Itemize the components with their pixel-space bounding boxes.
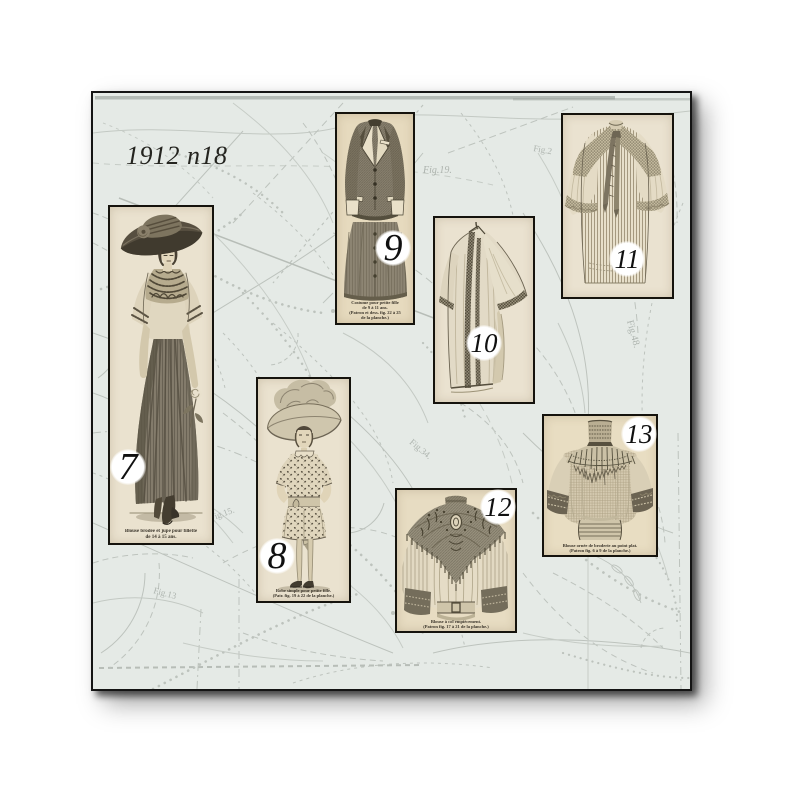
- svg-text:Fig.19.: Fig.19.: [422, 165, 452, 176]
- svg-text:11: 11: [615, 244, 640, 274]
- svg-text:8: 8: [268, 538, 287, 574]
- svg-text:7: 7: [119, 449, 140, 485]
- svg-text:13: 13: [626, 419, 653, 449]
- svg-text:9: 9: [384, 230, 403, 266]
- svg-text:10: 10: [471, 328, 499, 358]
- svg-text:12: 12: [485, 492, 512, 522]
